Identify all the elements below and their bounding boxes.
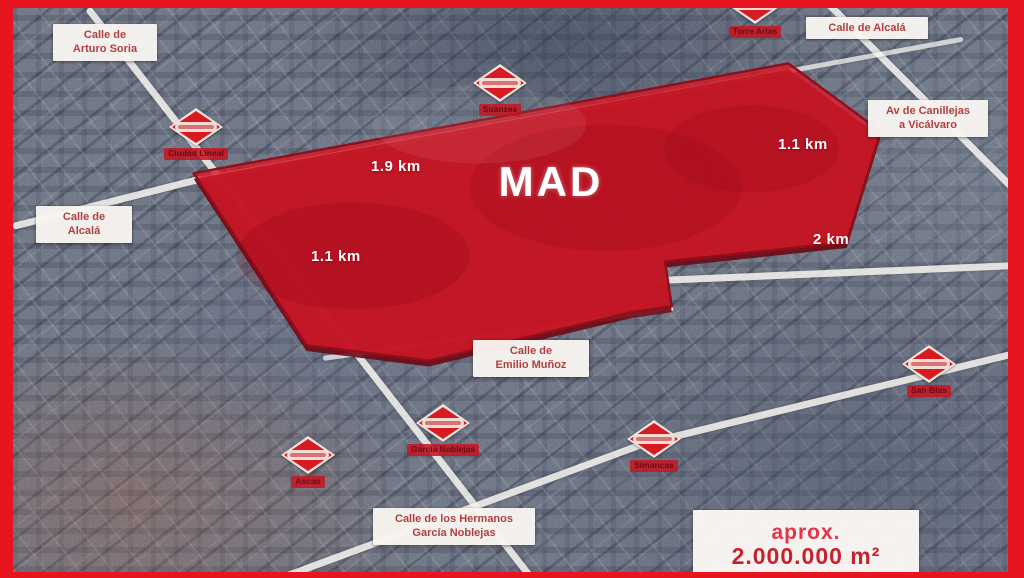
street-label-line: a Vicálvaro <box>875 118 981 132</box>
area-approx-label: aprox. <box>771 521 840 544</box>
distance-lower-left: 1.1 km <box>311 248 361 265</box>
street-label-line: Emilio Muñoz <box>480 358 582 372</box>
street-label-arturo-soria: Calle de Arturo Soria <box>53 24 157 61</box>
street-label-line: Calle de <box>60 28 150 42</box>
street-label-alcala-top-right: Calle de Alcalá <box>806 17 928 39</box>
metro-station-torre-arias: Torre Arias <box>707 0 803 38</box>
madrid-aerial-map: MAD 1.9 km 1.1 km 1.1 km 2 km Ciudad Lin… <box>0 0 1024 578</box>
distance-lower-right: 2 km <box>813 231 849 248</box>
metro-logo-icon <box>169 108 223 146</box>
metro-station-label: Ciudad Lineal <box>164 148 228 160</box>
street-label-hermanos-garcia-noblejas: Calle de los Hermanos García Noblejas <box>373 508 535 545</box>
street-label-alcala-left: Calle de Alcalá <box>36 206 132 243</box>
street-label-line: Arturo Soria <box>60 42 150 56</box>
street-label-line: Calle de los Hermanos <box>380 512 528 526</box>
street-label-line: García Noblejas <box>380 526 528 540</box>
distance-upper-right: 1.1 km <box>778 136 828 153</box>
metro-logo-icon <box>281 436 335 474</box>
street-label-emilio-munoz: Calle de Emilio Muñoz <box>473 340 589 377</box>
street-label-line: Calle de Alcalá <box>813 21 921 35</box>
metro-station-label: Torre Arias <box>729 26 781 38</box>
area-square-meters: 2.000.000 m² <box>732 544 881 569</box>
distance-top: 1.9 km <box>371 158 421 175</box>
metro-logo-icon <box>902 345 956 383</box>
street-label-line: Calle de <box>480 344 582 358</box>
street-label-line: Av de Canillejas <box>875 104 981 118</box>
metro-logo-icon <box>416 404 470 442</box>
street-label-canillejas-vicalvaro: Av de Canillejas a Vicálvaro <box>868 100 988 137</box>
metro-station-label: García Noblejas <box>407 444 479 456</box>
area-annotation-box: aprox. 2.000.000 m² <box>693 510 919 578</box>
street-label-line: Calle de <box>43 210 125 224</box>
metro-station-san-blas: San Blas <box>881 345 977 397</box>
metro-station-simancas: Simancas <box>606 420 702 472</box>
metro-station-label: Suanzes <box>479 104 522 116</box>
metro-station-garcia-noblejas: García Noblejas <box>395 404 491 456</box>
metro-station-ciudad-lineal: Ciudad Lineal <box>148 108 244 160</box>
metro-station-label: San Blas <box>907 385 951 397</box>
metro-station-ascao: Ascao <box>260 436 356 488</box>
metro-station-label: Ascao <box>291 476 325 488</box>
metro-logo-icon <box>728 0 782 24</box>
metro-station-suanzes: Suanzes <box>452 64 548 116</box>
metro-logo-icon <box>473 64 527 102</box>
metro-station-label: Simancas <box>630 460 678 472</box>
metro-logo-icon <box>627 420 681 458</box>
street-label-line: Alcalá <box>43 224 125 238</box>
region-name: MAD <box>481 158 621 206</box>
